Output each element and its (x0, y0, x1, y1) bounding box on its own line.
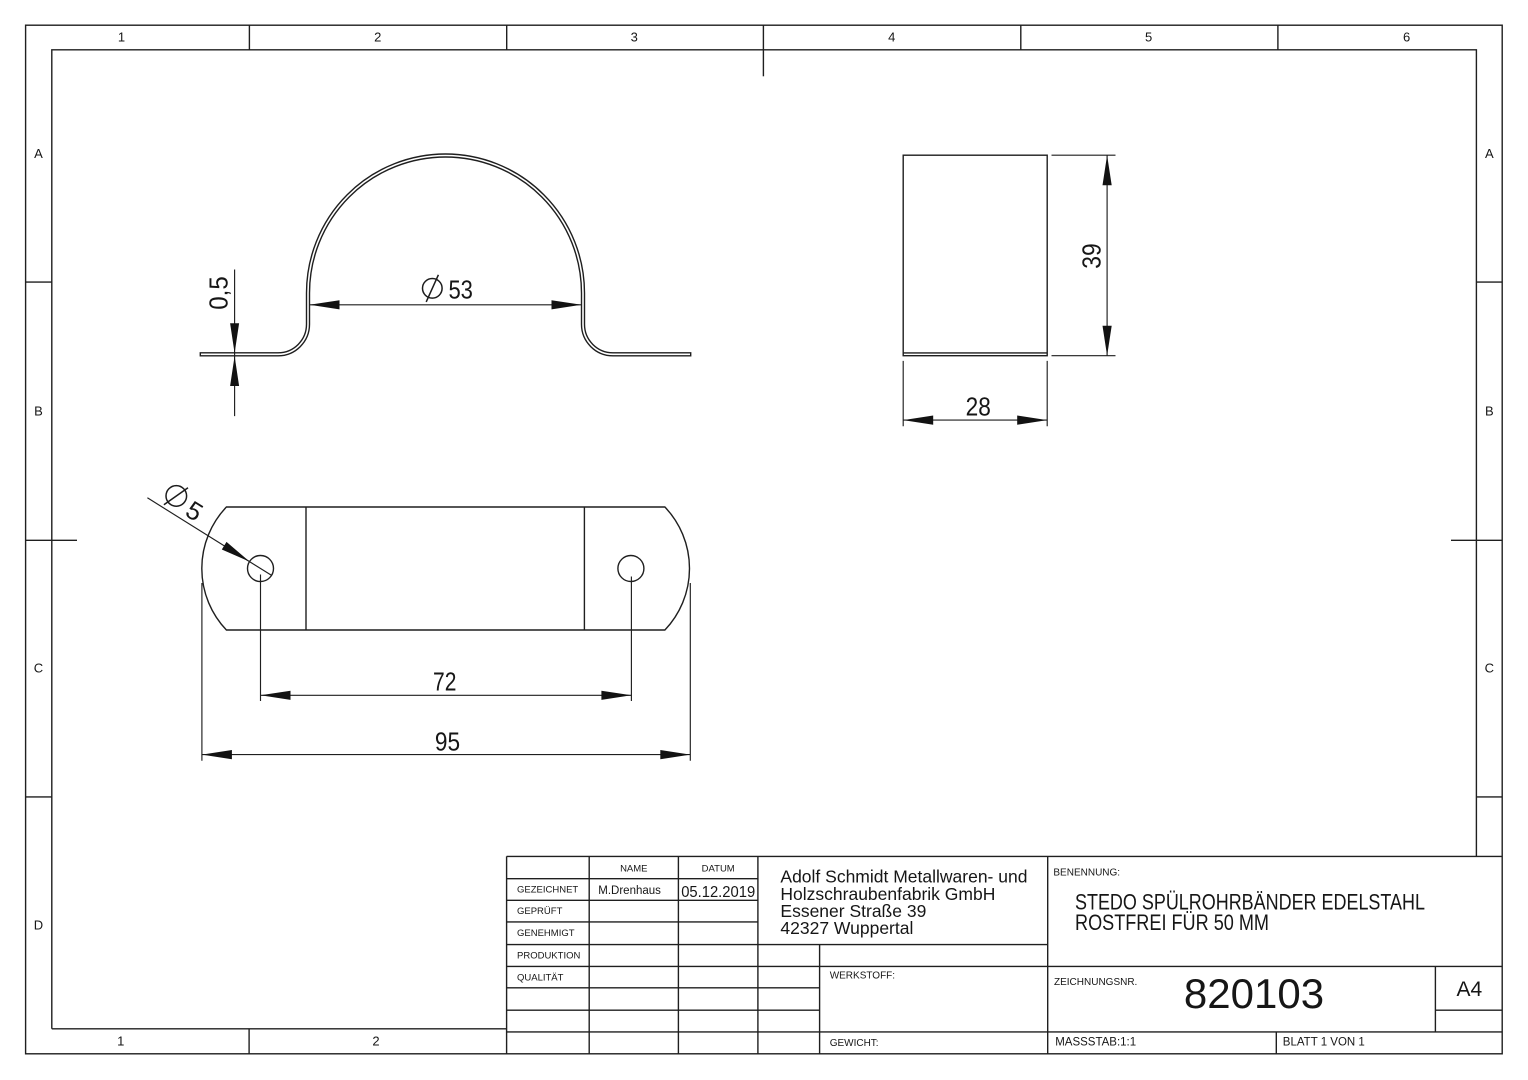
svg-text:GENEHMIGT: GENEHMIGT (517, 928, 575, 939)
svg-text:42327 Wuppertal: 42327 Wuppertal (780, 918, 913, 938)
svg-text:3: 3 (631, 30, 638, 45)
svg-text:NAME: NAME (620, 864, 647, 875)
svg-text:0,5: 0,5 (206, 276, 234, 310)
svg-text:6: 6 (1403, 30, 1410, 45)
svg-text:BLATT 1 VON 1: BLATT 1 VON 1 (1283, 1037, 1365, 1049)
svg-text:28: 28 (966, 393, 991, 421)
svg-text:PRODUKTION: PRODUKTION (517, 951, 580, 962)
svg-text:B: B (1485, 404, 1494, 419)
svg-text:39: 39 (1079, 243, 1107, 268)
svg-text:WERKSTOFF:: WERKSTOFF: (830, 971, 895, 982)
svg-text:M.Drenhaus: M.Drenhaus (598, 885, 661, 897)
svg-text:GEZEICHNET: GEZEICHNET (517, 885, 578, 896)
svg-text:DATUM: DATUM (702, 864, 735, 875)
svg-text:820103: 820103 (1184, 970, 1324, 1017)
svg-text:2: 2 (372, 1034, 379, 1049)
svg-text:5: 5 (1145, 30, 1152, 45)
svg-text:A4: A4 (1456, 978, 1482, 1001)
svg-text:GEPRÜFT: GEPRÜFT (517, 906, 563, 917)
svg-text:72: 72 (433, 669, 456, 697)
svg-text:B: B (34, 404, 43, 419)
svg-text:05.12.2019: 05.12.2019 (681, 884, 755, 901)
svg-text:D: D (34, 918, 43, 933)
svg-text:1: 1 (118, 30, 125, 45)
svg-text:2: 2 (374, 30, 381, 45)
svg-text:C: C (1485, 661, 1494, 676)
svg-text:ROSTFREI FÜR 50 MM: ROSTFREI FÜR 50 MM (1075, 910, 1269, 935)
svg-text:53: 53 (448, 276, 473, 304)
svg-text:ZEICHNUNGSNR.: ZEICHNUNGSNR. (1054, 977, 1137, 988)
svg-text:GEWICHT:: GEWICHT: (830, 1038, 879, 1049)
svg-text:95: 95 (435, 728, 460, 756)
svg-text:4: 4 (888, 30, 895, 45)
svg-text:1: 1 (117, 1034, 124, 1049)
svg-text:C: C (34, 661, 43, 676)
svg-text:A: A (34, 146, 43, 161)
svg-text:BENENNUNG:: BENENNUNG: (1053, 868, 1120, 879)
svg-text:QUALITÄT: QUALITÄT (517, 973, 564, 984)
svg-text:A: A (1485, 146, 1494, 161)
svg-text:MASSSTAB:1:1: MASSSTAB:1:1 (1055, 1037, 1136, 1049)
